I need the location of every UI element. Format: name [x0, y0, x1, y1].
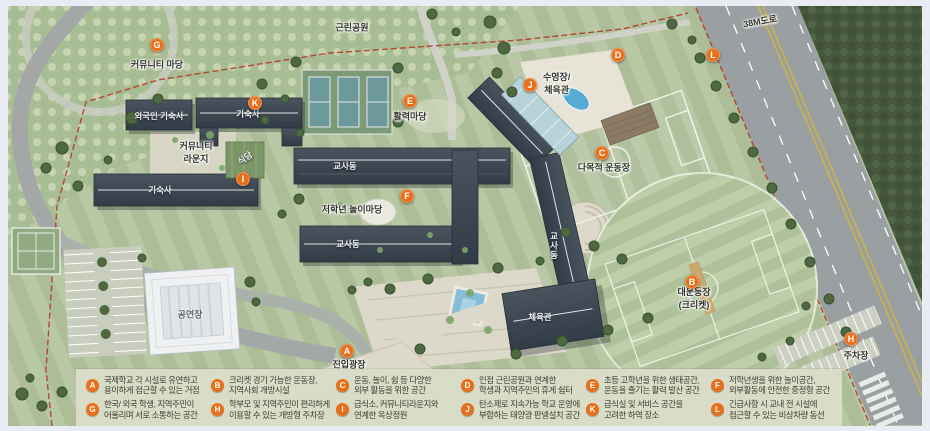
legend-item-C: C운동, 놀이, 쉼 등 다양한외부 활동을 위한 공간: [336, 375, 459, 396]
legend-marker-E: E: [586, 379, 599, 392]
legend-marker-L: L: [711, 403, 724, 416]
legend-text-A: 국제학교 각 시설로 유연하고용이하게 접근할 수 있는 거점: [104, 375, 199, 396]
legend-marker-A: A: [86, 379, 99, 392]
legend-text-G: 한국/ 외국 학생, 지역주민이어울리며 서로 소통하는 공간: [104, 399, 197, 420]
legend-item-B: B크리켓 경기 가능한 운동장,지역사회 개방시설: [211, 375, 334, 396]
legend-text-I: 급식소, 커뮤니티라운지와연계한 옥상정원: [354, 399, 438, 420]
legend-item-H: H학부모 및 지역주민이 편리하게이용할 수 있는 개방형 주차장: [211, 399, 334, 420]
legend-marker-H: H: [211, 403, 224, 416]
legend-text-F: 저학년생을 위한 놀이공간,외부활동에 안전한 중정형 공간: [729, 375, 830, 396]
legend-text-D: 인접 근린공원과 연계한학생과 지역주민의 휴게 쉼터: [479, 375, 572, 396]
legend-text-L: 긴급사항 시 교내 전 시설에접근할 수 있는 비상차량 동선: [729, 399, 824, 420]
legend-text-H: 학부모 및 지역주민이 편리하게이용할 수 있는 개방형 주차장: [229, 399, 330, 420]
legend-item-K: K급식실 및 서비스 공간을고려한 하역 장소: [586, 399, 709, 420]
map-artwork: [0, 0, 930, 431]
legend-item-D: D인접 근린공원과 연계한학생과 지역주민의 휴게 쉼터: [461, 375, 584, 396]
legend-panel: A국제학교 각 시설로 유연하고용이하게 접근할 수 있는 거점B크리켓 경기 …: [76, 369, 842, 426]
legend-marker-C: C: [336, 379, 349, 392]
site-plan-image: 근린공원38M도로커뮤니티 마당활력마당수영장/체육관다목적 운동장저학년 놀이…: [0, 0, 930, 431]
legend-text-K: 급식실 및 서비스 공간을고려한 하역 장소: [604, 399, 683, 420]
legend-item-J: J탄소제로 지속가능 학교 운영에부합하는 태양광 판넬설치 공간: [461, 399, 584, 420]
legend-marker-F: F: [711, 379, 724, 392]
legend-item-I: I급식소, 커뮤니티라운지와연계한 옥상정원: [336, 399, 459, 420]
legend-marker-J: J: [461, 403, 474, 416]
legend-item-E: E초등 고학년을 위한 생태공간,운동을 즐기는 활력 발산 공간: [586, 375, 709, 396]
legend-marker-G: G: [86, 403, 99, 416]
legend-marker-B: B: [211, 379, 224, 392]
legend-item-F: F저학년생을 위한 놀이공간,외부활동에 안전한 중정형 공간: [711, 375, 834, 396]
legend-marker-K: K: [586, 403, 599, 416]
legend-marker-D: D: [461, 379, 474, 392]
legend-text-J: 탄소제로 지속가능 학교 운영에부합하는 태양광 판넬설치 공간: [479, 399, 580, 420]
legend-marker-I: I: [336, 403, 349, 416]
legend-item-G: G한국/ 외국 학생, 지역주민이어울리며 서로 소통하는 공간: [86, 399, 209, 420]
legend-item-A: A국제학교 각 시설로 유연하고용이하게 접근할 수 있는 거점: [86, 375, 209, 396]
legend-text-B: 크리켓 경기 가능한 운동장,지역사회 개방시설: [229, 375, 317, 396]
legend-text-E: 초등 고학년을 위한 생태공간,운동을 즐기는 활력 발산 공간: [604, 375, 699, 396]
legend-text-C: 운동, 놀이, 쉼 등 다양한외부 활동을 위한 공간: [354, 375, 431, 396]
legend-item-L: L긴급사항 시 교내 전 시설에접근할 수 있는 비상차량 동선: [711, 399, 834, 420]
